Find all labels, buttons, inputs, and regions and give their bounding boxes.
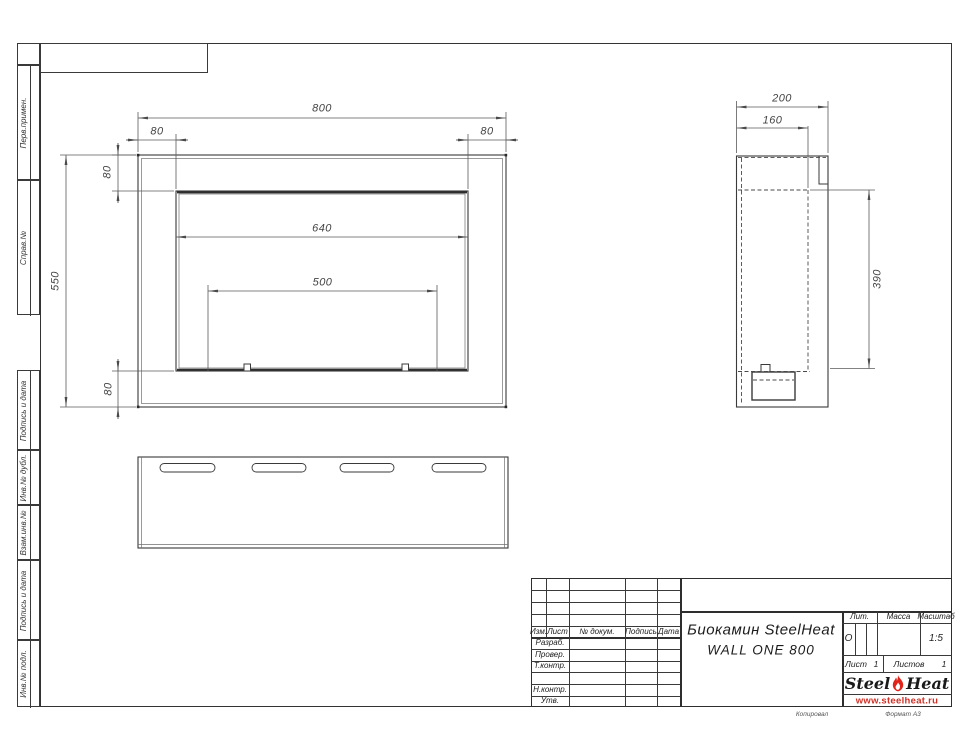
document-subtitle: WALL ONE 800 bbox=[707, 643, 815, 657]
tb-lit-value: О bbox=[845, 634, 853, 644]
tb-sheet-label: Лист bbox=[845, 659, 867, 668]
tb-scale-value: 1:5 bbox=[929, 634, 943, 644]
tb-sheet-value: 1 bbox=[874, 659, 879, 668]
tb-row-prover: Провер. bbox=[535, 651, 565, 659]
margin-box-perv-primen: Перв.примен. bbox=[17, 65, 40, 180]
margin-label-sprav-no: Справ.№ bbox=[20, 231, 28, 265]
tb-col-izm: Изм. bbox=[530, 628, 547, 636]
logo-url: www.steelheat.ru bbox=[856, 696, 939, 706]
tb-col-doc: № докум. bbox=[579, 628, 614, 636]
dim-front-burner: 500 bbox=[313, 277, 333, 288]
tb-lit-label: Лит. bbox=[850, 613, 869, 621]
dim-side-inner-depth: 160 bbox=[763, 115, 783, 126]
tb-row-tkontr: Т.контр. bbox=[534, 662, 566, 670]
margin-label-perv-primen: Перв.примен. bbox=[20, 98, 28, 149]
tb-sheets-label: Листов bbox=[894, 659, 925, 668]
dim-side-height: 390 bbox=[872, 269, 883, 289]
flame-icon bbox=[891, 675, 905, 692]
logo-steel-text: Steel bbox=[845, 676, 890, 692]
margin-box-vzam-inv: Взам.инв.№ bbox=[17, 505, 40, 560]
tb-col-list: Лист bbox=[547, 628, 568, 636]
tb-col-date: Дата bbox=[658, 628, 679, 636]
margin-box-podpis-data-1: Подпись и дата bbox=[17, 370, 40, 450]
margin-box-podpis-data-2: Подпись и дата bbox=[17, 560, 40, 640]
margin-box-sprav-no: Справ.№ bbox=[17, 180, 40, 315]
dim-side-depth: 200 bbox=[772, 94, 792, 105]
margin-label-vzam-inv: Взам.инв.№ bbox=[20, 510, 28, 555]
margin-label-podpis-data-1: Подпись и дата bbox=[20, 381, 28, 442]
steelheat-logo: Steel Heat bbox=[842, 673, 952, 694]
tb-row-razrab: Разраб. bbox=[536, 639, 565, 647]
margin-label-inv-podl: Инв.№ подл. bbox=[20, 650, 28, 697]
tb-scale-label: Масштаб bbox=[917, 613, 954, 621]
tb-sheets-value: 1 bbox=[942, 659, 947, 668]
footer-kopiroval: Копировал bbox=[796, 711, 828, 718]
tb-col-sign: Подпись bbox=[625, 628, 657, 636]
margin-box-inv-dubl: Инв.№ дубл. bbox=[17, 450, 40, 505]
dim-front-frame-right: 80 bbox=[480, 126, 493, 137]
tb-row-utv: Утв. bbox=[541, 697, 559, 705]
margin-box-empty bbox=[17, 43, 40, 65]
dim-front-frame-left: 80 bbox=[150, 126, 163, 137]
dim-front-frame-bottom: 80 bbox=[104, 382, 115, 395]
tb-massa-label: Масса bbox=[887, 613, 911, 621]
drawing-sheet: Перв.примен. Справ.№ Подпись и дата Инв.… bbox=[0, 0, 970, 749]
dim-front-opening: 640 bbox=[312, 223, 332, 234]
margin-box-inv-podl: Инв.№ подл. bbox=[17, 640, 40, 707]
dim-front-width: 800 bbox=[312, 104, 332, 115]
dim-front-height: 550 bbox=[51, 271, 62, 291]
tb-row-nkontr: Н.контр. bbox=[533, 686, 567, 694]
footer-format: Формат А3 bbox=[885, 711, 921, 718]
top-left-stamp-box bbox=[40, 43, 208, 73]
logo-heat-text: Heat bbox=[906, 676, 949, 692]
margin-label-inv-dubl: Инв.№ дубл. bbox=[20, 455, 28, 502]
document-title: Биокамин SteelHeat bbox=[687, 622, 835, 637]
dim-front-frame-top: 80 bbox=[103, 165, 114, 178]
margin-label-podpis-data-2: Подпись и дата bbox=[20, 571, 28, 632]
